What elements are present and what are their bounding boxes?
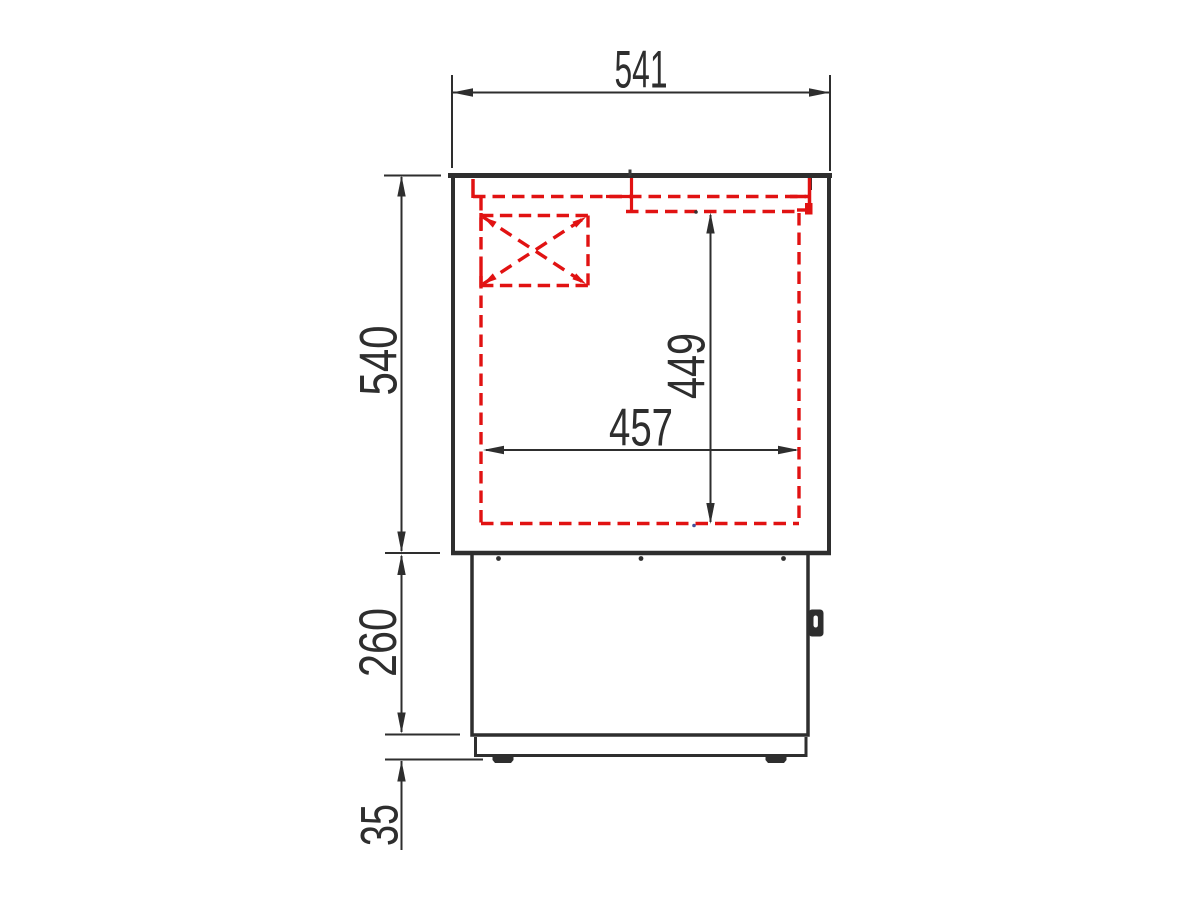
svg-text:35: 35 bbox=[351, 804, 410, 846]
svg-text:541: 541 bbox=[615, 41, 668, 100]
svg-text:449: 449 bbox=[658, 333, 717, 399]
svg-text:260: 260 bbox=[349, 608, 408, 677]
svg-text:457: 457 bbox=[609, 399, 673, 458]
svg-text:540: 540 bbox=[350, 326, 409, 396]
